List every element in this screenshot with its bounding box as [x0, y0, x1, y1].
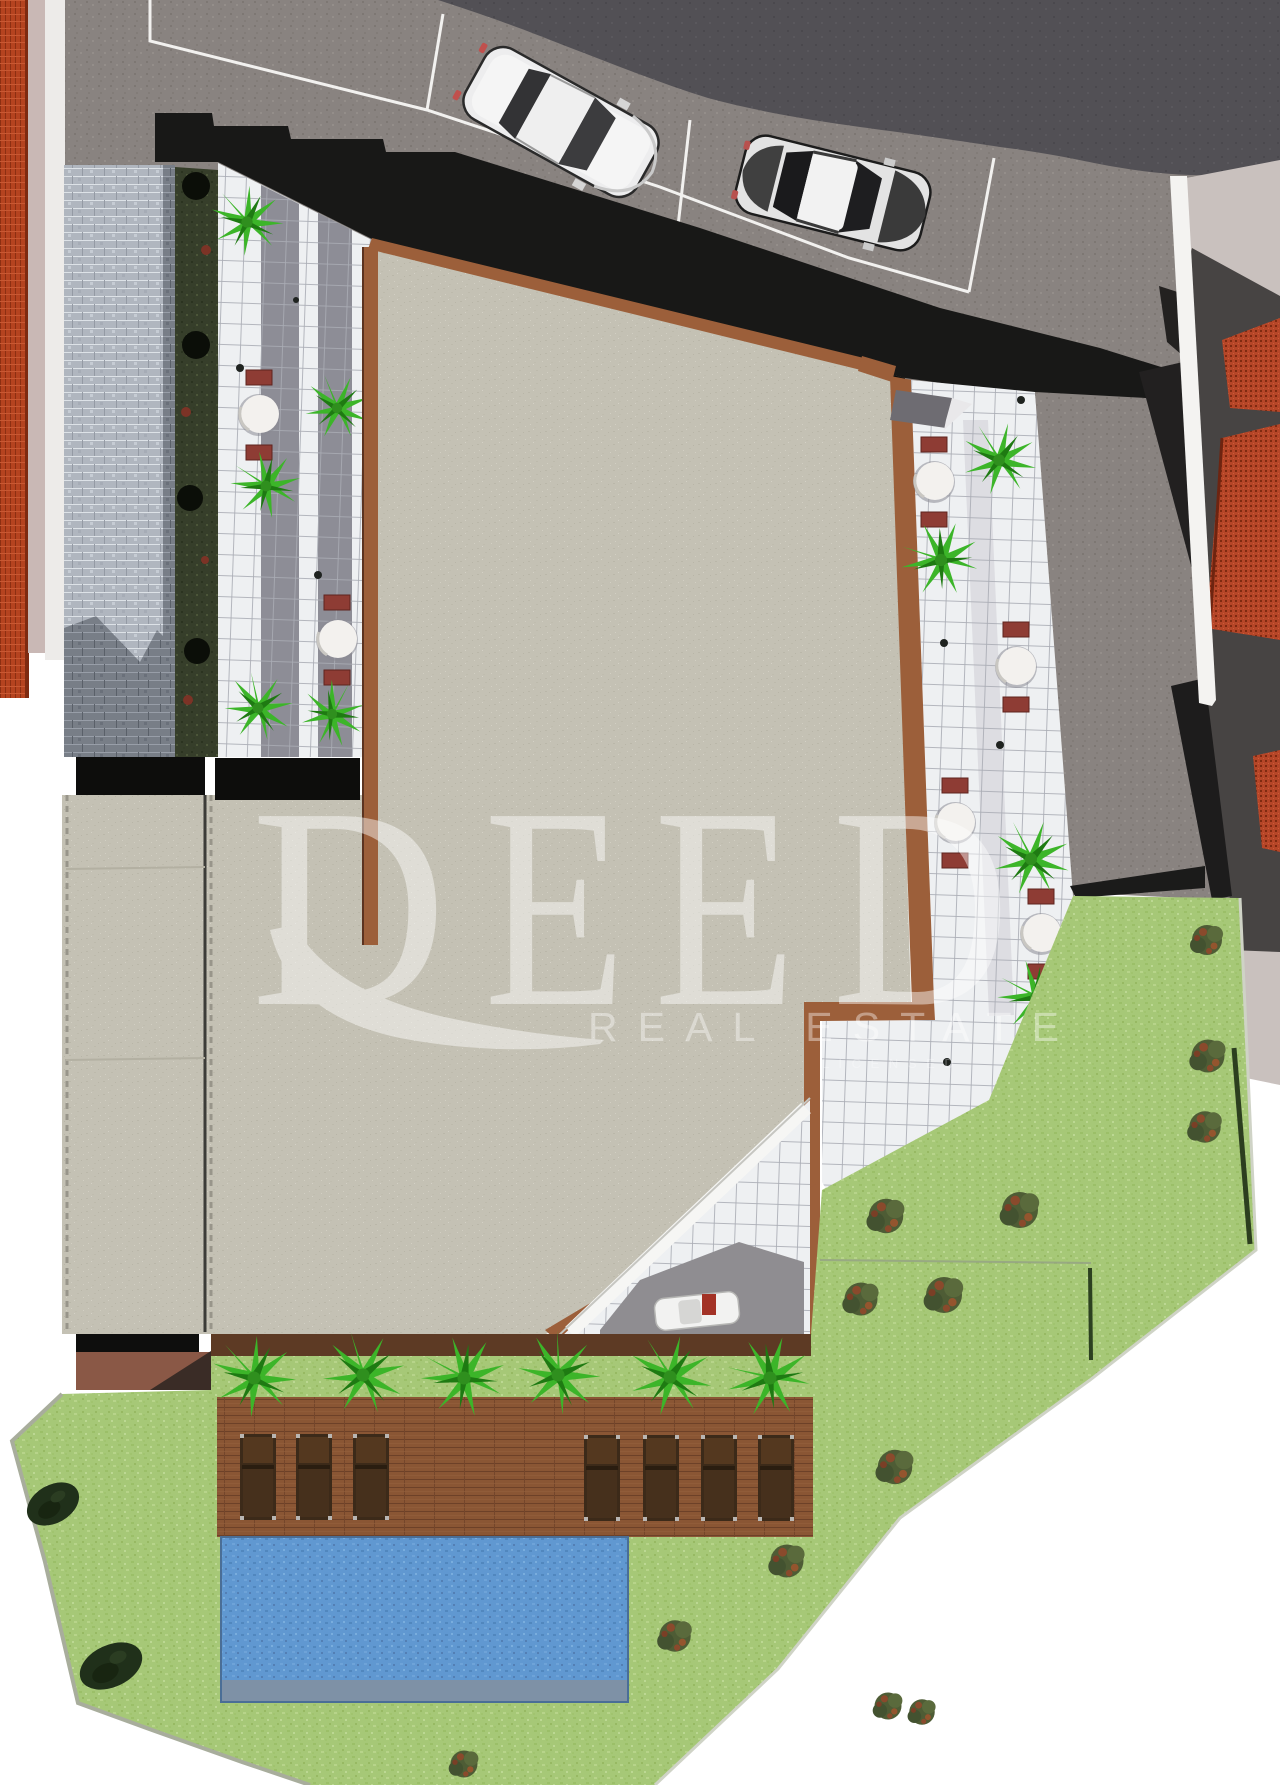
- svg-text:L I C E N S E D: L I C E N S E D: [822, 1056, 957, 1071]
- svg-text:REAL ESTATE: REAL ESTATE: [588, 1004, 1059, 1050]
